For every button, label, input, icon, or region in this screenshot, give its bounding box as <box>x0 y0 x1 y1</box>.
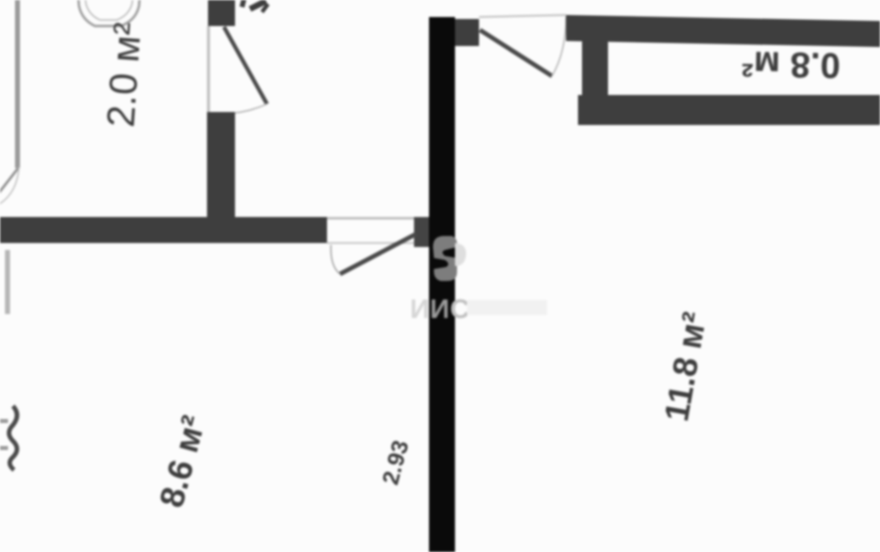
svg-text:И: И <box>430 294 449 324</box>
svg-text:2.0 м²: 2.0 м² <box>100 21 150 129</box>
svg-text:С: С <box>450 294 470 324</box>
svg-text:И: И <box>410 294 429 324</box>
svg-text:0.8 м²: 0.8 м² <box>741 44 840 87</box>
